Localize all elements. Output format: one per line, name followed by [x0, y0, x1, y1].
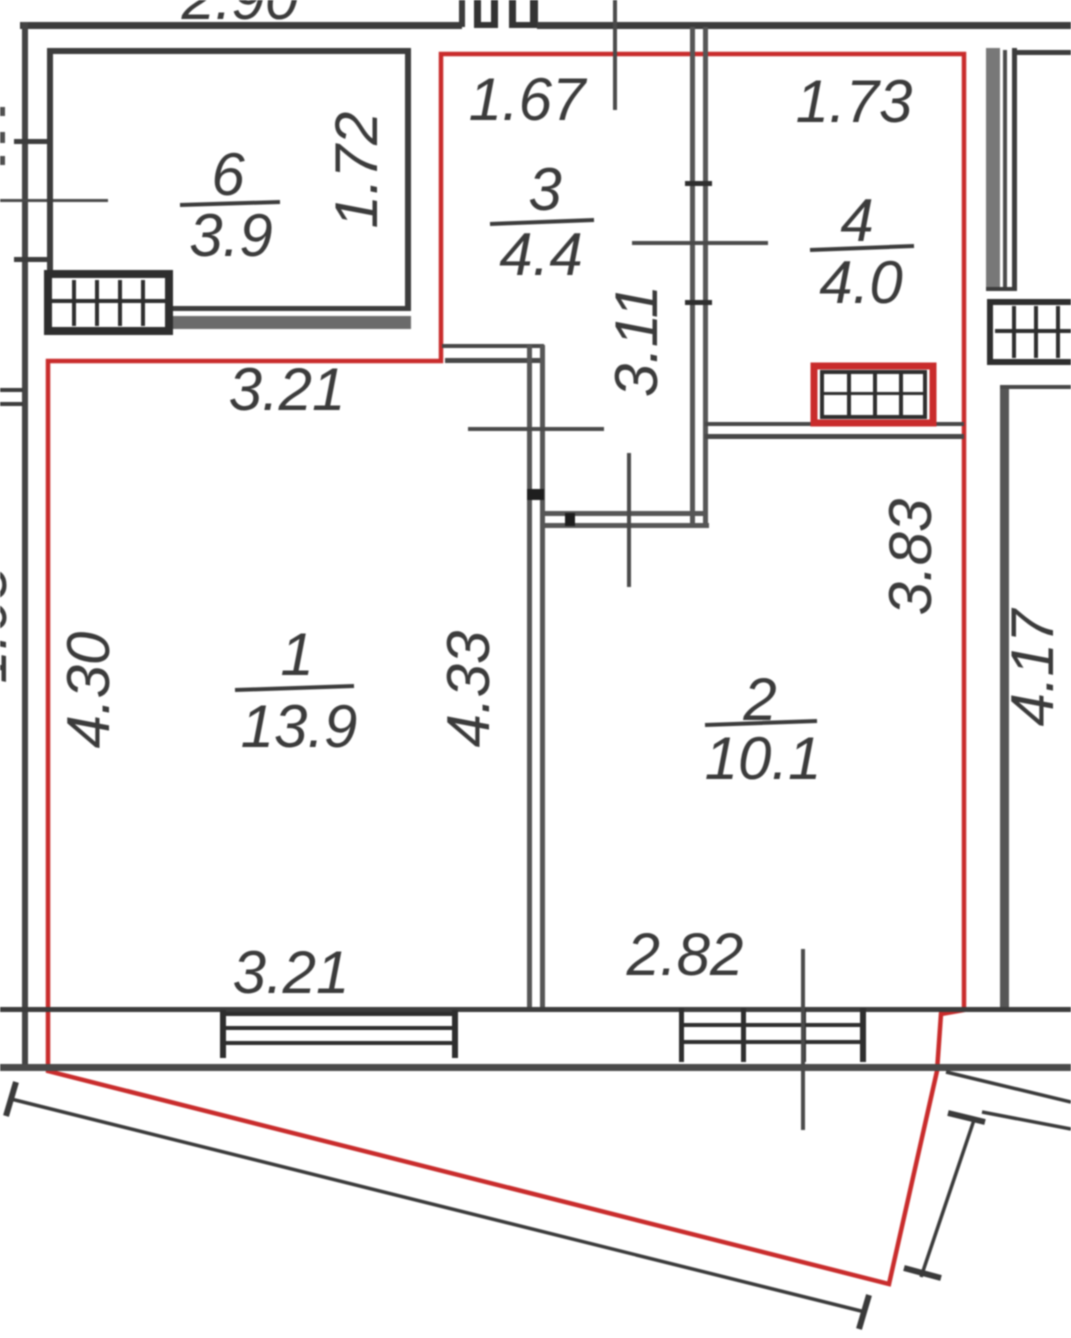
svg-text:3: 3 — [528, 156, 561, 223]
svg-text:1: 1 — [280, 621, 313, 688]
svg-text:4.30: 4.30 — [55, 632, 122, 749]
svg-text:3.11: 3.11 — [603, 285, 670, 397]
svg-text:6: 6 — [211, 141, 245, 208]
svg-text:1.65: 1.65 — [0, 566, 19, 683]
svg-text:13.9: 13.9 — [241, 693, 358, 760]
svg-text:1.67: 1.67 — [469, 66, 588, 133]
svg-text:2.90: 2.90 — [181, 0, 299, 32]
svg-text:4.17: 4.17 — [999, 607, 1066, 726]
svg-text:4.0: 4.0 — [819, 249, 902, 316]
svg-text:4.33: 4.33 — [435, 631, 502, 748]
svg-text:4: 4 — [840, 187, 873, 254]
svg-text:10.1: 10.1 — [705, 725, 822, 792]
svg-text:1.73: 1.73 — [796, 68, 913, 135]
svg-text:1.72: 1.72 — [323, 112, 390, 229]
svg-text:3.21: 3.21 — [233, 939, 350, 1006]
svg-text:2.82: 2.82 — [626, 921, 744, 988]
svg-text:4.4: 4.4 — [499, 221, 582, 288]
svg-text:3.9: 3.9 — [189, 202, 272, 269]
svg-text:3.21: 3.21 — [229, 356, 346, 423]
svg-text:3.83: 3.83 — [877, 499, 944, 616]
